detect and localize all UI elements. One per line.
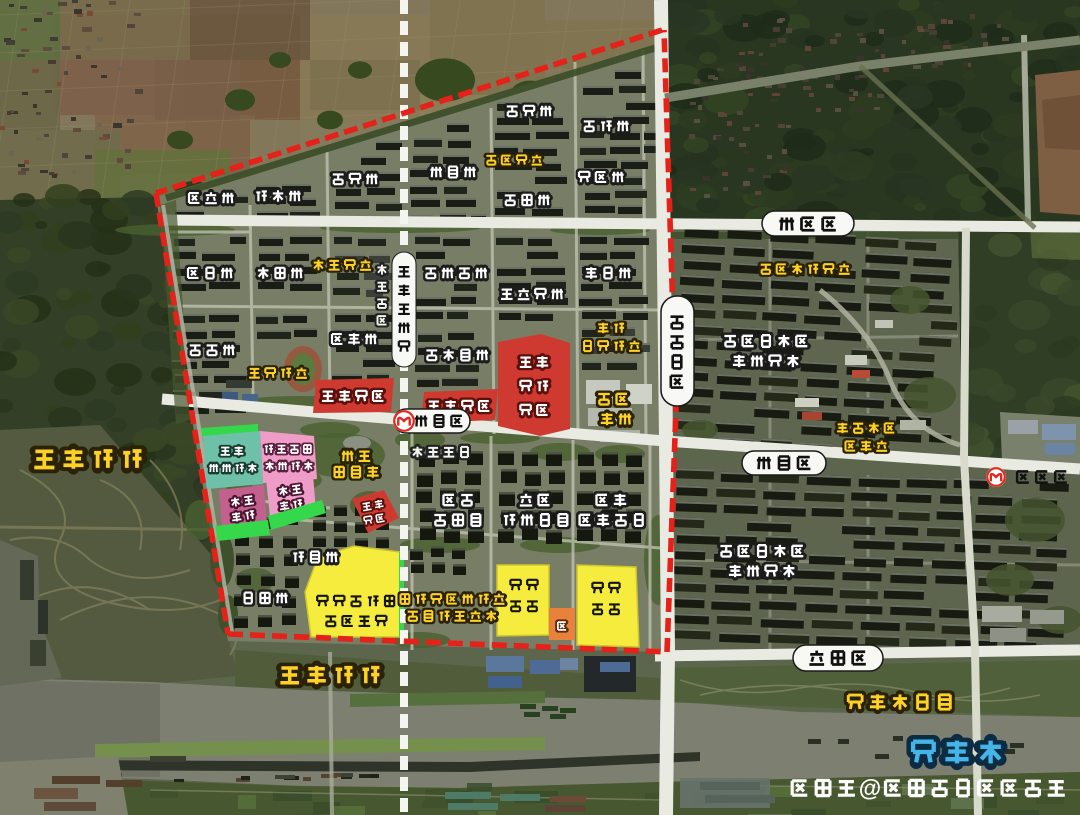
svg-text:@: @: [859, 775, 881, 801]
